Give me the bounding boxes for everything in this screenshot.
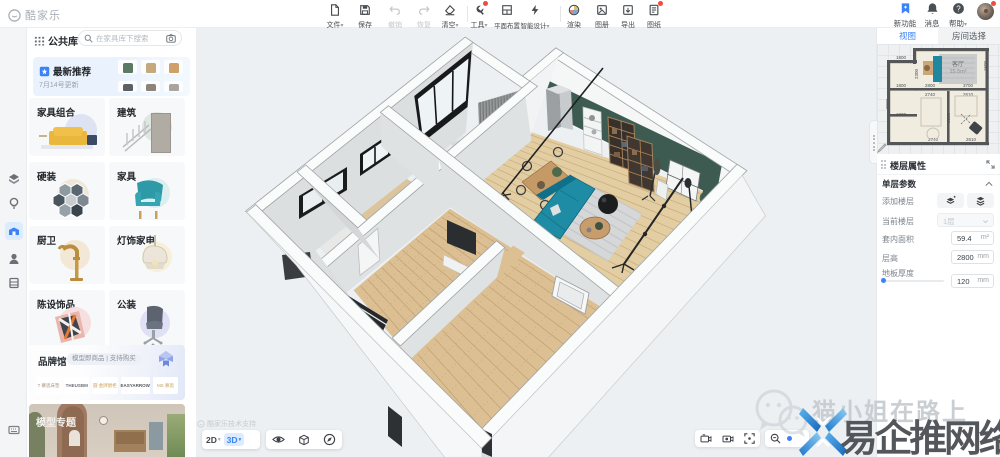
svg-text:1800: 1800: [896, 55, 907, 60]
svg-text:15.5m²: 15.5m²: [949, 69, 966, 75]
svg-text:1800: 1800: [896, 112, 907, 117]
svg-text:1800: 1800: [896, 83, 907, 88]
svg-text:2610: 2610: [966, 137, 977, 142]
svg-text:3700: 3700: [963, 83, 974, 88]
svg-text:2740: 2740: [925, 92, 936, 97]
svg-text:6000: 6000: [946, 112, 951, 123]
svg-text:2060: 2060: [885, 98, 890, 109]
svg-text:2800: 2800: [925, 83, 936, 88]
svg-text:2300: 2300: [914, 68, 919, 79]
svg-text:1500: 1500: [983, 60, 988, 71]
svg-text:客厅: 客厅: [952, 60, 964, 68]
svg-text:?: ?: [956, 4, 961, 13]
